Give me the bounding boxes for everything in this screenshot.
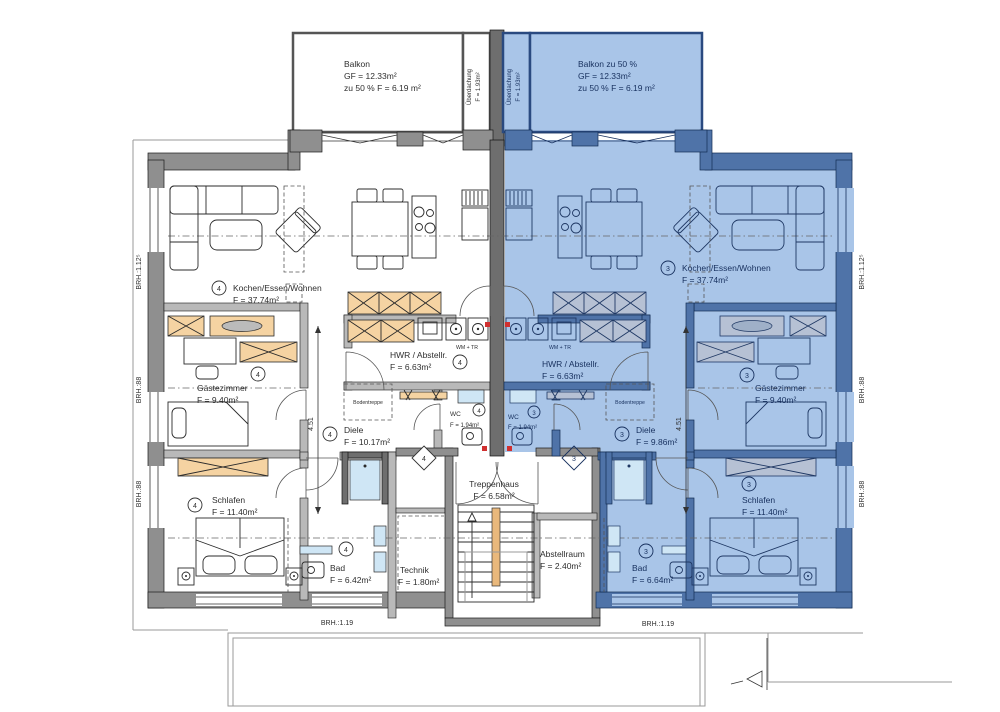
circle-num-gaeste-left: 4 (256, 372, 260, 379)
room-bad-right-name: Bad (632, 563, 647, 573)
balcony-right-gf: GF = 12.33m² (578, 71, 631, 81)
room-hwr-left-area: F = 6.63m² (390, 362, 432, 372)
canopy-left-area: F = 1.93m² (476, 72, 482, 101)
canopy-left-name: Überdachung (466, 69, 473, 105)
wm-tr-left: WM + TR (456, 345, 478, 351)
dim-vertical-right: 4.51 (676, 417, 683, 431)
room-abstellraum-name: Abstellraum (540, 549, 585, 559)
walls-left-unit (148, 130, 493, 618)
room-diele-right-area: F = 9.86m² (636, 437, 678, 447)
canopy-right-area: F = 1.93m² (516, 72, 522, 101)
room-abstellraum-area: F = 2.40m² (540, 561, 582, 571)
room-technik-name: Technik (400, 565, 430, 575)
room-hwr-right-name: HWR / Abstellr. (542, 359, 599, 369)
room-schlafen-left-area: F = 11.40m² (212, 507, 258, 517)
room-hwr-right-area: F = 6.63m² (542, 371, 584, 381)
room-bad-left-area: F = 6.42m² (330, 575, 372, 585)
room-hwr-left-name: HWR / Abstellr. (390, 350, 447, 360)
bodentreppe-left: Bodentreppe (353, 400, 383, 406)
stair-handrail (492, 508, 500, 586)
room-bad-left-name: Bad (330, 563, 345, 573)
brh-left-88-lower: BRH.:88 (136, 481, 143, 508)
room-treppenhaus-name: Treppenhaus (469, 479, 519, 489)
room-schlafen-right-name: Schlafen (742, 495, 775, 505)
room-gaeste-left-name: Gästezimmer (197, 383, 248, 393)
circle-num-hwr-left: 4 (458, 360, 462, 367)
circle-num-gaeste-right: 3 (745, 373, 749, 380)
balcony-right-name: Balkon zu 50 % (578, 59, 638, 69)
brh-bottom-right: BRH.:1.19 (642, 621, 674, 628)
room-bad-right-area: F = 6.64m² (632, 575, 674, 585)
dim-vertical-left: 4.51 (308, 417, 315, 431)
room-wc-right-area: F = 1.94m² (508, 425, 537, 431)
brh-bottom-left: BRH.:1.19 (321, 620, 353, 627)
room-gaeste-left-area: F = 9.40m² (197, 395, 239, 405)
brh-left-88-upper: BRH.:88 (136, 377, 143, 404)
circle-num-bad-left: 4 (344, 547, 348, 554)
room-wc-left-name: WC (450, 411, 461, 418)
brh-right-112: BRH.:1.12⁵ (859, 254, 866, 289)
room-schlafen-right-area: F = 11.40m² (742, 507, 788, 517)
room-diele-left-area: F = 10.17m² (344, 437, 390, 447)
room-gaeste-right-area: F = 9.40m² (755, 395, 797, 405)
circle-num-diele-left: 4 (328, 432, 332, 439)
room-schlafen-left-name: Schlafen (212, 495, 245, 505)
room-wohnen-left-area: F = 37.74m² (233, 295, 279, 305)
room-diele-left-name: Diele (344, 425, 364, 435)
circle-num-wc-left: 4 (477, 409, 481, 415)
balcony-left-gf: GF = 12.33m² (344, 71, 397, 81)
unit-right-diamond-number: 3 (572, 456, 576, 463)
balcony-left-area: zu 50 % F = 6.19 m² (344, 83, 421, 93)
wc-marker-red-right (507, 446, 512, 451)
room-wc-left-area: F = 1.94m² (450, 423, 479, 429)
room-gaeste-right-name: Gästezimmer (755, 383, 806, 393)
wc-marker-red-left (482, 446, 487, 451)
canopy-right-name: Überdachung (506, 69, 513, 105)
bodentreppe-right: Bodentreppe (615, 400, 645, 406)
brh-right-88-upper: BRH.:88 (859, 377, 866, 404)
wm-tr-right: WM + TR (549, 345, 571, 351)
room-wohnen-right-name: Kochen/Essen/Wohnen (682, 263, 771, 273)
room-wohnen-left-name: Kochen/Essen/Wohnen (233, 283, 322, 293)
staircase (458, 505, 534, 602)
floorplan-drawing: 4 3 4 4 4 4 4 4 4 3 3 3 3 3 3 Balkon GF … (0, 0, 1000, 707)
balcony-left-name: Balkon (344, 59, 370, 69)
brh-left-112: BRH.:1.12⁵ (136, 254, 143, 289)
circle-num-diele-right: 3 (620, 432, 624, 439)
circle-num-schlafen-left: 4 (193, 503, 197, 510)
kitchen-marker-red-right (505, 322, 510, 327)
room-wohnen-right-area: F = 37.74m² (682, 275, 728, 285)
unit-left-diamond-number: 4 (422, 456, 426, 463)
room-technik-area: F = 1.80m² (398, 577, 440, 587)
room-diele-right-name: Diele (636, 425, 656, 435)
circle-num-bad-right: 3 (644, 549, 648, 556)
circle-num-wohnen-right: 3 (666, 266, 670, 273)
floorplan-page: 4 3 4 4 4 4 4 4 4 3 3 3 3 3 3 Balkon GF … (0, 0, 1000, 707)
kitchen-marker-red-left (485, 322, 490, 327)
circle-num-schlafen-right: 3 (747, 482, 751, 489)
balcony-right-area: zu 50 % F = 6.19 m² (578, 83, 655, 93)
brh-right-88-lower: BRH.:88 (859, 481, 866, 508)
room-treppenhaus-area: F = 6.58m² (473, 491, 515, 501)
room-wc-right-name: WC (508, 414, 519, 421)
circle-num-wohnen-left: 4 (217, 286, 221, 293)
